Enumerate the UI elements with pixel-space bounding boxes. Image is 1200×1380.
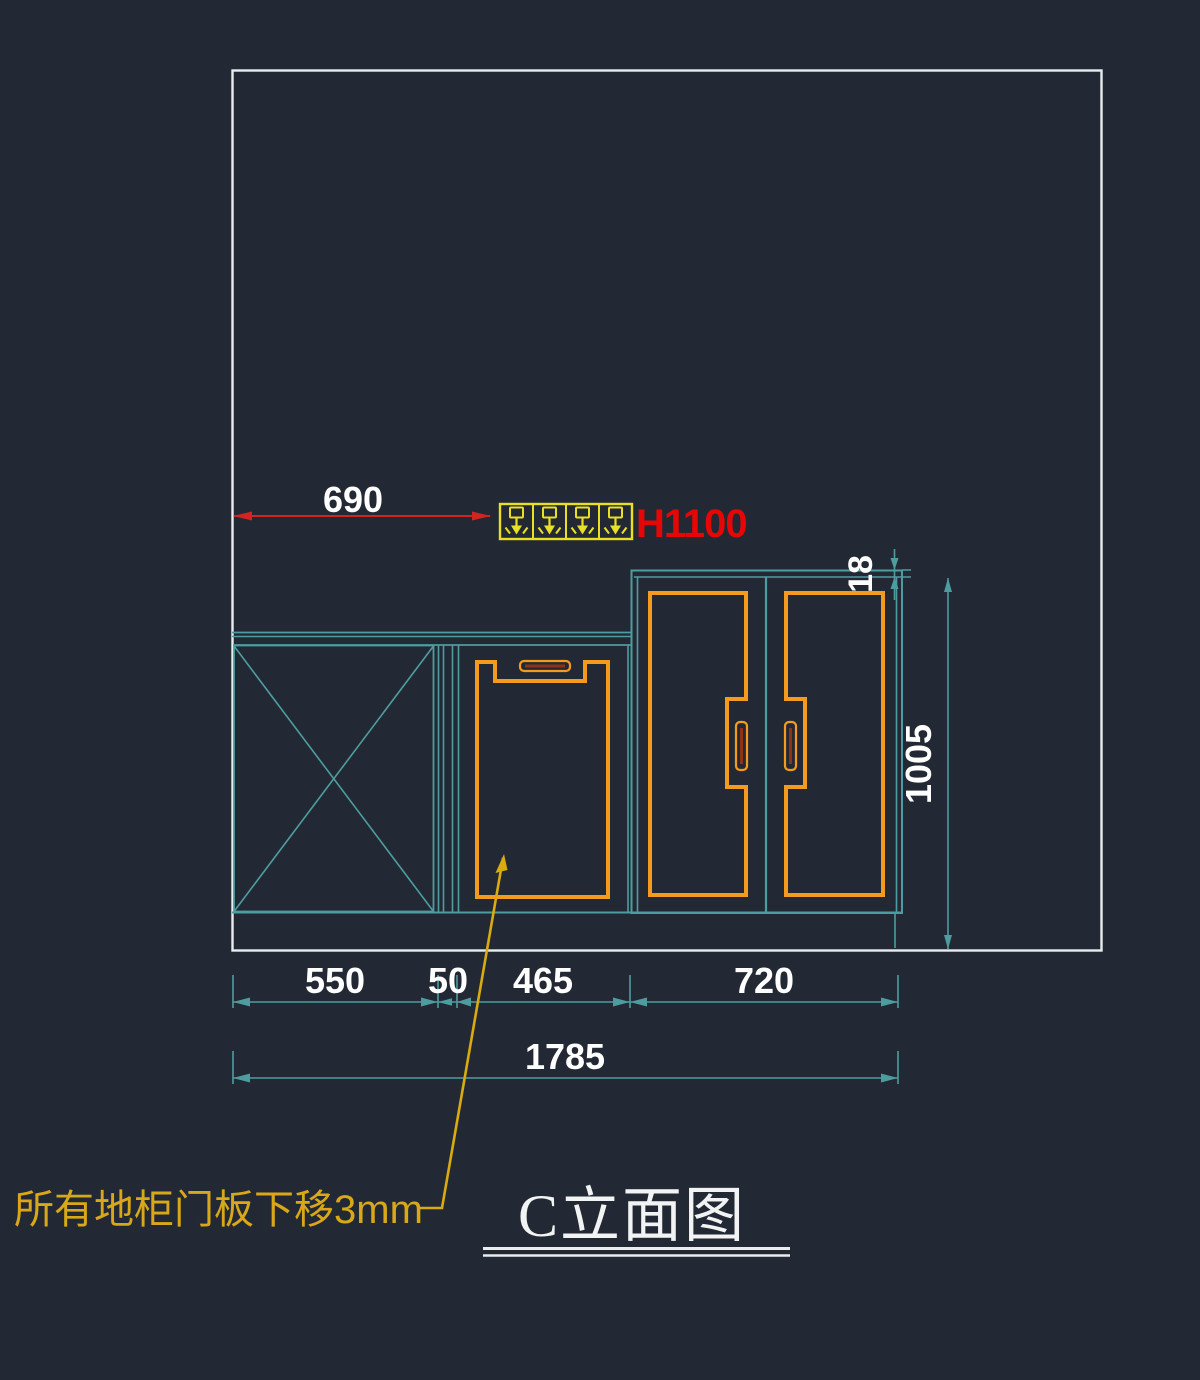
annotation-note-text: 所有地柜门板下移3mm [14,1188,423,1232]
drawing-title: C立面图 [483,1183,790,1256]
dim-label-18: 18 [842,555,880,593]
door-handle-slot [736,722,747,770]
socket-block: H1100 [500,502,747,546]
door-handle-slot [520,661,570,671]
dimension-width-segments: 550 50 465 720 [233,960,898,1008]
power-socket-icon [539,508,561,535]
power-socket-icon [605,508,627,535]
dim-label-720: 720 [734,960,794,1001]
tall-cabinet-carcass [632,571,903,949]
dim-label-690: 690 [323,479,383,520]
countertop-lines [232,633,631,646]
dim-label-1785: 1785 [525,1036,605,1077]
dimension-top-panel: 18 [842,549,911,600]
filler-panel-lines [439,645,629,912]
base-cabinet-run [232,645,902,913]
door-handle-slot [785,722,796,770]
dim-label-465: 465 [513,960,573,1001]
tall-door-right [785,593,883,895]
tall-door-left [650,593,747,895]
socket-height-label: H1100 [636,502,747,546]
power-socket-icon [506,508,528,535]
crossed-appliance-space [234,646,434,912]
dimension-total-width: 1785 [233,1036,898,1084]
power-socket-icon [572,508,594,535]
dim-label-50: 50 [428,960,468,1001]
dim-label-1005: 1005 [898,724,939,804]
dimension-tall-height: 1005 [898,578,952,949]
dim-label-550: 550 [305,960,365,1001]
dimension-socket-offset: 690 [233,479,491,521]
cad-drawing-canvas[interactable]: 690 [0,0,1200,1380]
title-text: C立面图 [518,1183,746,1249]
base-door-middle [477,661,608,897]
